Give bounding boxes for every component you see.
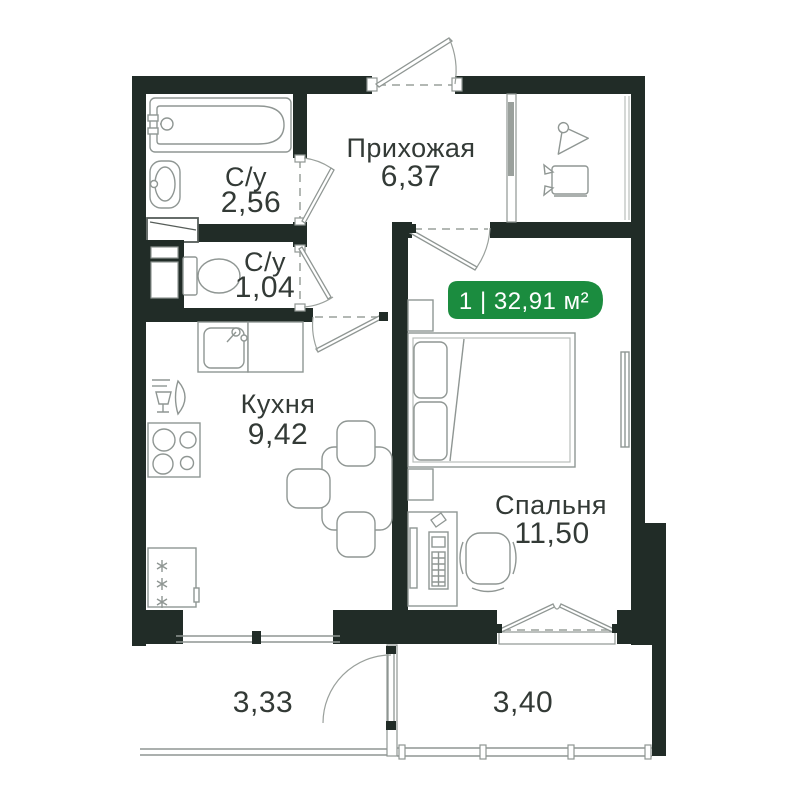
badge-label: 1 | 32,91 м² xyxy=(459,288,589,315)
bedroom-door xyxy=(408,224,490,270)
monitor-icon xyxy=(410,528,417,588)
bed-icon xyxy=(408,333,575,467)
loggia-left-area: 3,33 xyxy=(233,686,293,719)
wc-area: 1,04 xyxy=(235,271,295,304)
loggia-partition-door xyxy=(323,645,397,756)
loggia-right-area: 3,40 xyxy=(493,686,553,719)
toilet-icon xyxy=(183,257,240,295)
bathroom-area: 2,56 xyxy=(221,186,281,219)
vent-shaft xyxy=(146,240,184,310)
sink-icon xyxy=(150,161,180,208)
radiator-icon xyxy=(621,352,629,447)
office-chair-icon xyxy=(460,533,516,592)
wc-door xyxy=(295,245,333,311)
loggia-right-window xyxy=(397,745,652,759)
stove-icon xyxy=(148,423,200,477)
nightstand-icon xyxy=(408,469,433,500)
kitchen-sink-icon xyxy=(204,328,247,368)
shoe-box-icon xyxy=(544,165,588,196)
loggia-left-parapet xyxy=(140,749,387,755)
wardrobe-partition xyxy=(507,94,629,222)
kitchen-label: Кухня xyxy=(241,389,316,419)
area-badge: 1 | 32,91 м² xyxy=(448,281,603,319)
dishes-icon xyxy=(152,380,185,414)
bathroom-door xyxy=(295,155,334,225)
kitchen-fixtures xyxy=(148,322,392,608)
chair-icon xyxy=(287,469,330,508)
bathtub-icon xyxy=(148,98,291,152)
bathroom-fixtures xyxy=(147,98,291,242)
chair-icon xyxy=(337,421,375,466)
wardrobe xyxy=(544,115,588,196)
bedroom-furniture xyxy=(408,300,629,606)
french-door xyxy=(493,604,621,644)
bedroom-label: Спальня xyxy=(495,490,607,520)
bedroom-area: 11,50 xyxy=(514,517,589,550)
desk-icon xyxy=(408,512,457,606)
kitchen-door xyxy=(313,312,388,352)
hallway-label: Прихожая xyxy=(346,133,475,163)
hanger-icon xyxy=(546,115,588,154)
kitchen-area: 9,42 xyxy=(248,418,308,451)
fridge-icon xyxy=(148,548,199,608)
kitchen-window-icon xyxy=(176,631,340,644)
hallway-area: 6,37 xyxy=(381,160,441,193)
floor-plan-page: Прихожая 6,37 С/у 2,56 С/у 1,04 Кухня 9,… xyxy=(0,0,800,800)
keyboard-icon xyxy=(429,532,448,589)
washing-box-icon xyxy=(147,218,198,242)
nightstand-icon xyxy=(408,300,433,331)
floor-plan: Прихожая 6,37 С/у 2,56 С/у 1,04 Кухня 9,… xyxy=(0,0,800,800)
wc-fixtures xyxy=(146,240,240,310)
chair-icon xyxy=(337,512,375,557)
entrance-door xyxy=(367,38,462,91)
